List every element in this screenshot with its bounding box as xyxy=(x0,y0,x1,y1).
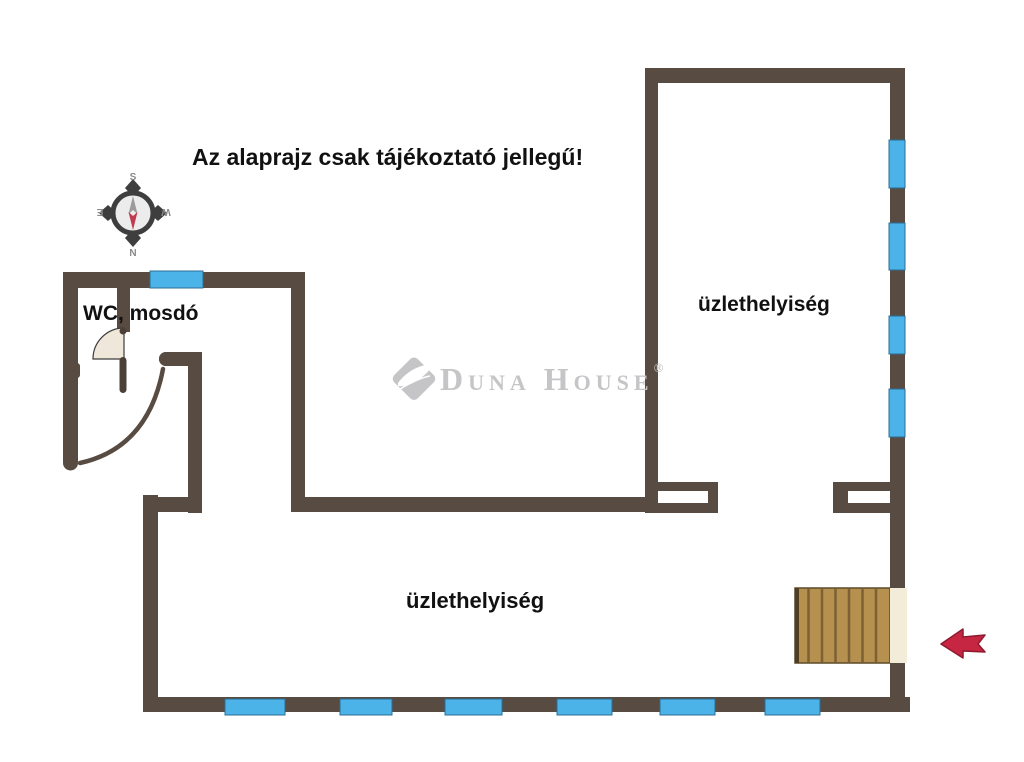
stairs-landing xyxy=(890,588,907,663)
window xyxy=(445,699,502,715)
window xyxy=(150,271,203,288)
stairs xyxy=(795,588,907,663)
wall-corridor-bottom xyxy=(291,497,645,512)
compass-left-label: E xyxy=(96,206,103,217)
window xyxy=(660,699,715,715)
wall-right-seg xyxy=(890,68,905,141)
room-label-shop-top: üzlethelyiség xyxy=(698,293,830,317)
wall-hall-right xyxy=(291,272,305,512)
window xyxy=(889,223,905,270)
wall-hall-left xyxy=(188,352,202,513)
floorplan-canvas: S N E W Az alaprajz csak tájékoztató jel… xyxy=(0,0,1024,762)
compass-bottom-label: N xyxy=(129,248,136,259)
window xyxy=(889,316,905,354)
wall-right-seg xyxy=(890,188,905,224)
wall-end-cap xyxy=(63,456,78,471)
wall-right-seg xyxy=(890,353,905,390)
disclaimer-title: Az alaprajz csak tájékoztató jellegű! xyxy=(192,144,583,171)
wall-bottom-room-left xyxy=(143,495,158,712)
entrance-arrow-icon xyxy=(941,629,985,658)
brand-text: Duna House xyxy=(440,361,654,397)
window xyxy=(340,699,392,715)
registered-mark: ® xyxy=(654,360,664,375)
wc-door-fan xyxy=(93,328,124,359)
wall-right-seg xyxy=(890,270,905,317)
duna-house-wordmark: Duna House® xyxy=(440,360,663,398)
room-label-wc: WC, mosdó xyxy=(83,302,199,326)
window xyxy=(557,699,612,715)
duna-house-logo-icon xyxy=(391,355,438,402)
window xyxy=(225,699,285,715)
wall-top xyxy=(645,68,905,83)
window xyxy=(765,699,820,715)
wall-right-seg xyxy=(890,437,905,483)
compass-top-label: S xyxy=(130,172,137,183)
wc-door-leaf xyxy=(120,357,127,393)
window xyxy=(889,389,905,437)
door-hinge-nub xyxy=(73,363,80,378)
compass-icon: S N E W xyxy=(96,172,170,259)
room-label-shop-bottom: üzlethelyiség xyxy=(406,588,544,614)
doorway-slot xyxy=(658,491,708,503)
wc-door-hinge xyxy=(120,328,127,335)
window xyxy=(889,140,905,188)
wall-right-seg xyxy=(890,512,905,589)
stairs-edge xyxy=(795,588,799,663)
wall-left-of-top-room xyxy=(645,68,658,513)
compass-right-label: W xyxy=(161,206,171,217)
doorway-slot xyxy=(848,491,890,503)
door-hinge-dot xyxy=(159,352,173,366)
